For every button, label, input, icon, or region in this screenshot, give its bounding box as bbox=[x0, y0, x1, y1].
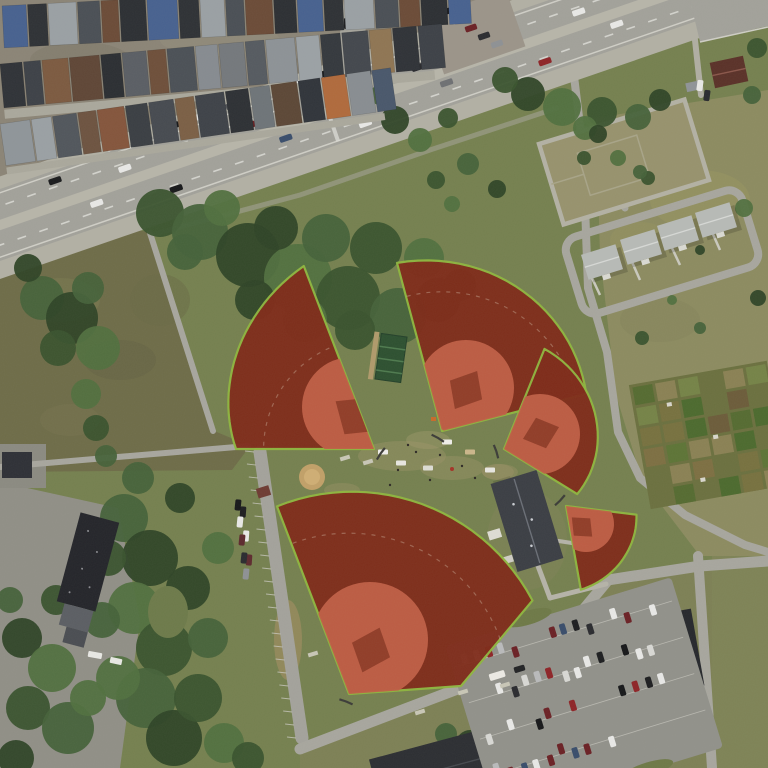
aerial-satellite-map bbox=[0, 0, 768, 768]
film-grain bbox=[0, 0, 768, 768]
aerial-screenshot bbox=[0, 0, 768, 768]
